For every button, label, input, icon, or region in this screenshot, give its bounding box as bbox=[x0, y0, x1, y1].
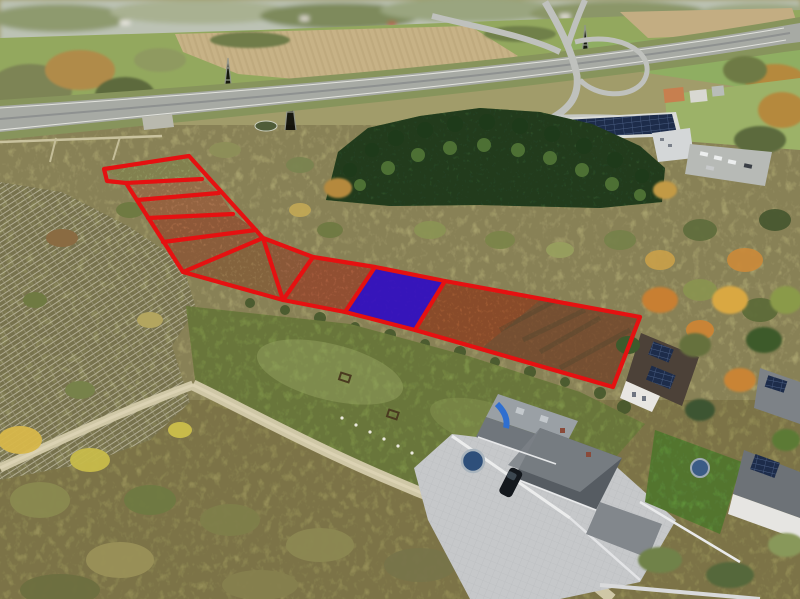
warehouse-office bbox=[652, 128, 694, 162]
chimney bbox=[560, 428, 565, 433]
pond bbox=[255, 121, 277, 131]
trampoline-2 bbox=[691, 459, 709, 477]
trampoline bbox=[462, 450, 484, 472]
aerial-scene bbox=[0, 0, 800, 599]
aerial-photo-land-listing bbox=[0, 0, 800, 599]
